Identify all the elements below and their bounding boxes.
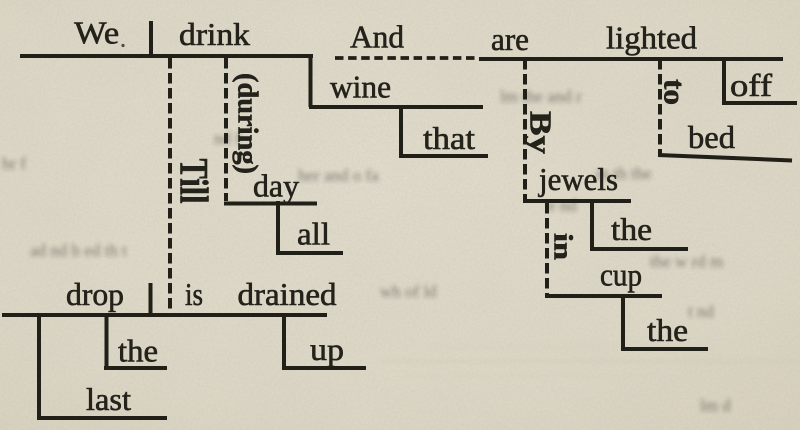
svg-text:drained: drained bbox=[238, 276, 337, 312]
svg-text:lm d: lm d bbox=[700, 396, 731, 415]
svg-text:that: that bbox=[423, 120, 475, 156]
svg-text:all: all bbox=[297, 216, 330, 252]
svg-text:lighted: lighted bbox=[606, 20, 697, 56]
svg-text:last: last bbox=[86, 381, 131, 417]
svg-text:wh of ld: wh of ld bbox=[380, 282, 437, 301]
svg-text:is: is bbox=[185, 276, 203, 312]
svg-text:We: We bbox=[74, 15, 119, 51]
svg-text:in: in bbox=[549, 233, 578, 261]
svg-text:cup: cup bbox=[600, 257, 642, 293]
svg-text:ad nd b ed th t: ad nd b ed th t bbox=[30, 241, 127, 260]
svg-text:the: the bbox=[647, 312, 688, 348]
svg-text:drink: drink bbox=[179, 16, 250, 52]
svg-text:By: By bbox=[524, 111, 559, 155]
svg-text:the: the bbox=[611, 211, 652, 247]
svg-text:up: up bbox=[310, 331, 344, 367]
svg-text:the: the bbox=[118, 333, 158, 369]
svg-text:And: And bbox=[350, 19, 404, 55]
svg-text:e nd: e nd bbox=[548, 196, 577, 215]
svg-text:are: are bbox=[491, 21, 529, 57]
svg-text:hr f: hr f bbox=[2, 154, 26, 173]
svg-text:t nd: t nd bbox=[688, 302, 714, 321]
svg-text:drop: drop bbox=[66, 276, 124, 312]
svg-text:Till: Till bbox=[172, 159, 217, 204]
svg-text:jewels: jewels bbox=[538, 161, 618, 197]
svg-text:off: off bbox=[730, 67, 772, 103]
svg-text:bed: bed bbox=[688, 119, 735, 155]
svg-text:(during): (during) bbox=[232, 73, 264, 174]
svg-text:wine: wine bbox=[330, 69, 391, 105]
svg-text:her and o fa: her and o fa bbox=[298, 166, 379, 185]
svg-text:to: to bbox=[658, 79, 691, 105]
svg-text:the w rd m: the w rd m bbox=[650, 252, 723, 271]
svg-text:lm the and r: lm the and r bbox=[500, 87, 582, 106]
